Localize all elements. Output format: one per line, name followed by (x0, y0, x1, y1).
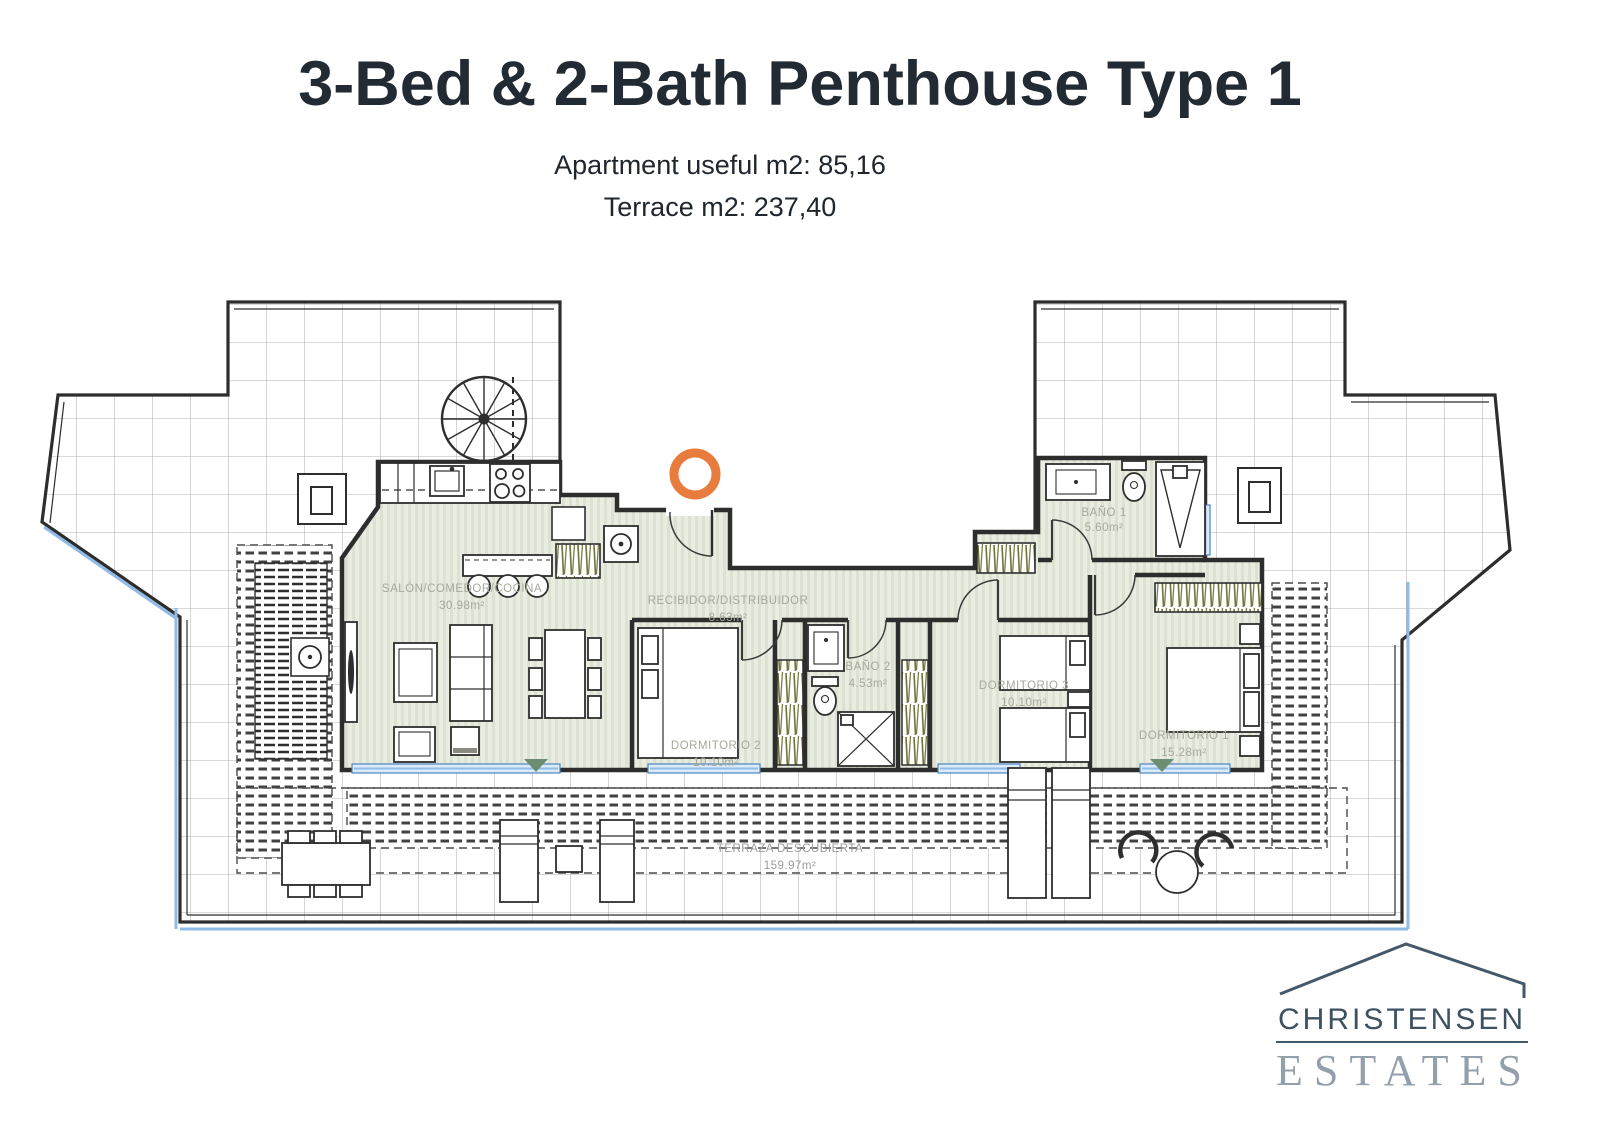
sun-lounger-icon (600, 820, 634, 902)
sofa-icon (450, 625, 492, 721)
planter-strip (255, 563, 329, 759)
side-table-icon (556, 846, 582, 872)
room-label: SALÓN/COMEDOR/COCINA (382, 582, 542, 595)
logo-divider (1276, 1041, 1528, 1043)
room-area: 8.63m² (709, 612, 748, 624)
tv-panel-icon (345, 622, 357, 722)
room-label: BAÑO 1 (1081, 506, 1126, 519)
apartment-interior (342, 458, 1262, 773)
room-label: DORMITORIO 3 (979, 680, 1069, 692)
toilet-icon (812, 677, 838, 715)
toilet-icon (1122, 461, 1146, 501)
room-label: DORMITORIO 1 (1139, 730, 1229, 742)
hall-closet-hatch (977, 543, 1035, 573)
room-area: 10.10m² (693, 757, 739, 769)
nightstand-icon (1240, 624, 1260, 644)
sink-icon (1046, 464, 1110, 500)
floor-plan-page: 3-Bed & 2-Bath Penthouse Type 1 Apartmen… (0, 0, 1600, 1131)
room-label: DORMITORIO 2 (671, 740, 761, 752)
terrace-area: 159.97m² (764, 860, 817, 872)
nightstand-icon (1240, 736, 1260, 756)
sun-lounger-icon (1052, 768, 1090, 898)
coffee-table-icon (451, 727, 479, 755)
sun-lounger-icon (1008, 768, 1046, 898)
pillar (1238, 468, 1281, 523)
wardrobe-hatch (902, 660, 928, 765)
closet-hatch (556, 544, 600, 578)
room-label: BAÑO 2 (845, 660, 890, 673)
logo-roof-icon (1276, 936, 1528, 998)
kitchen-hob-icon (490, 464, 530, 502)
washer-icon (604, 526, 638, 562)
room-area: 10.10m² (1001, 697, 1047, 709)
pillar (298, 474, 346, 524)
sink-icon (808, 625, 844, 671)
spiral-staircase-icon (442, 377, 526, 461)
chaise (394, 643, 437, 702)
room-area: 4.53m² (849, 678, 888, 690)
outdoor-dining-set (282, 831, 370, 897)
wardrobe-hatch (1155, 583, 1262, 612)
sun-lounger-icon (500, 820, 538, 902)
dining-table-icon (529, 630, 601, 718)
room-area: 5.60m² (1085, 522, 1124, 534)
room-area: 15.28m² (1161, 747, 1207, 759)
kitchen-sink-icon (430, 466, 464, 496)
logo-christensen: CHRISTENSEN (1276, 1003, 1528, 1037)
wardrobe-hatch (777, 660, 803, 765)
shower-icon (1156, 462, 1205, 556)
entrance-marker-ring (674, 453, 716, 495)
bed-icon (1000, 708, 1090, 762)
brand-logo: CHRISTENSEN ESTATES (1276, 936, 1528, 1097)
nightstand-icon (1068, 692, 1090, 707)
terrace-label: TERRAZA DESCUBIERTA (717, 843, 863, 855)
room-label: RECIBIDOR/DISTRIBUIDOR (648, 595, 809, 607)
bed-icon (1167, 648, 1262, 732)
room-area: 30.98m² (439, 600, 485, 612)
shower-icon (838, 712, 894, 766)
logo-estates: ESTATES (1276, 1045, 1528, 1097)
